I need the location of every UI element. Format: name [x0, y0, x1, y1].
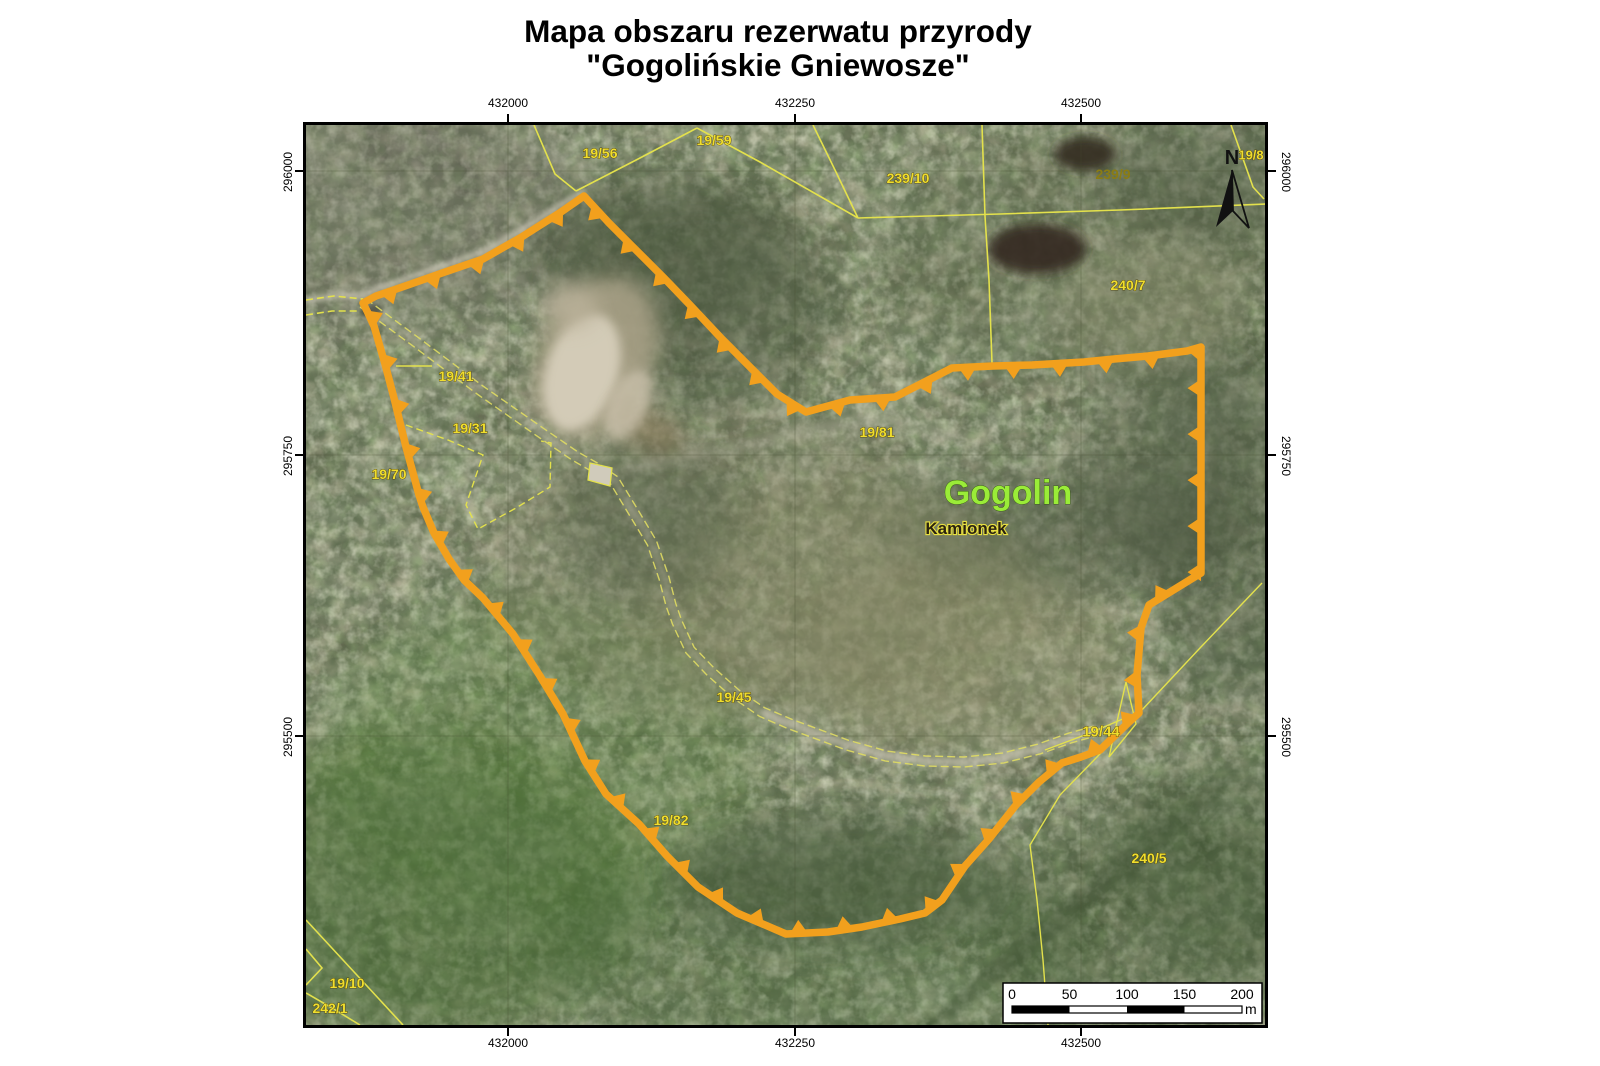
svg-text:m: m: [1245, 1001, 1257, 1017]
svg-text:19/70: 19/70: [371, 466, 406, 482]
svg-text:19/44: 19/44: [1082, 723, 1120, 740]
svg-text:19/59: 19/59: [696, 132, 731, 148]
svg-text:19/10: 19/10: [329, 975, 364, 991]
svg-text:Kamionek: Kamionek: [925, 519, 1007, 538]
svg-text:N: N: [1225, 147, 1239, 169]
svg-text:0: 0: [1008, 986, 1016, 1002]
svg-text:240/7: 240/7: [1110, 277, 1145, 293]
svg-text:19/56: 19/56: [582, 145, 617, 161]
svg-text:100: 100: [1115, 986, 1139, 1002]
svg-text:239/9: 239/9: [1095, 166, 1130, 182]
svg-text:19/8: 19/8: [1238, 148, 1263, 163]
svg-text:239/10: 239/10: [887, 170, 930, 186]
svg-text:200: 200: [1230, 986, 1254, 1002]
svg-text:242/1: 242/1: [312, 1000, 347, 1016]
svg-text:Gogolin: Gogolin: [944, 474, 1072, 512]
svg-text:19/82: 19/82: [653, 812, 688, 828]
svg-text:19/45: 19/45: [716, 689, 751, 705]
svg-text:150: 150: [1173, 986, 1197, 1002]
svg-text:19/41: 19/41: [438, 368, 473, 384]
svg-text:50: 50: [1062, 986, 1078, 1002]
svg-text:240/5: 240/5: [1131, 850, 1166, 866]
svg-text:19/31: 19/31: [452, 420, 487, 436]
svg-text:19/81: 19/81: [859, 424, 894, 440]
